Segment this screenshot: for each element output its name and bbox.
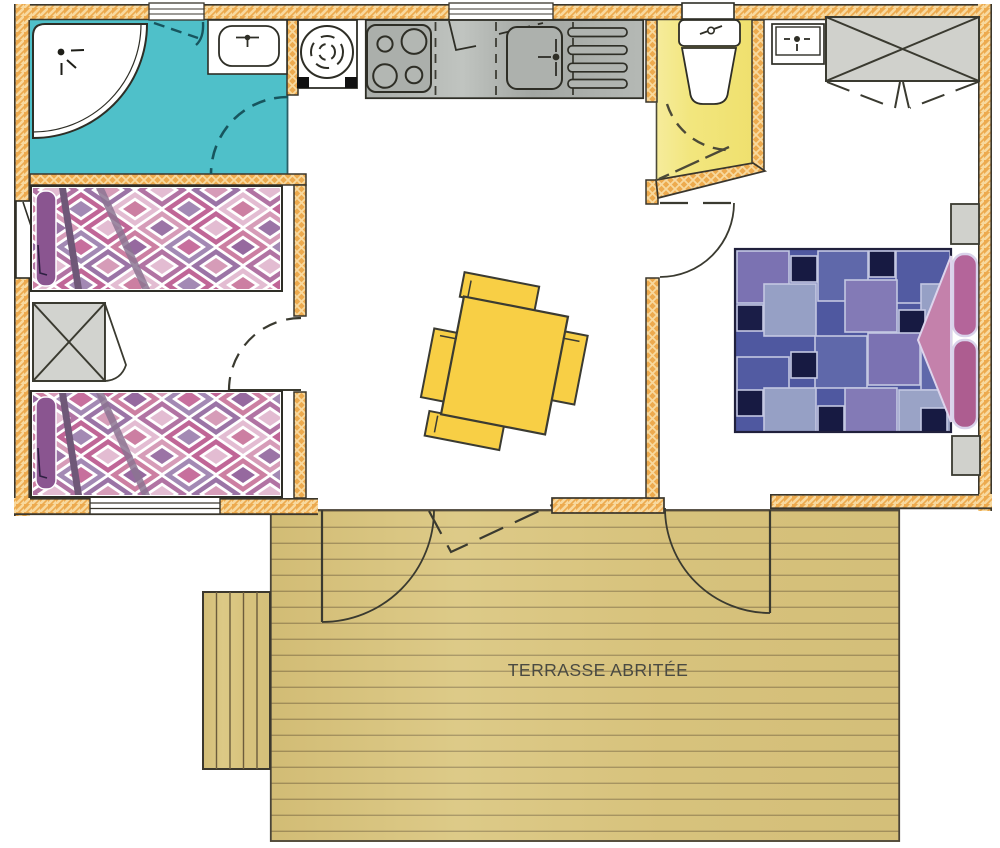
svg-text:TERRASSE ABRITÉE: TERRASSE ABRITÉE bbox=[508, 660, 688, 680]
